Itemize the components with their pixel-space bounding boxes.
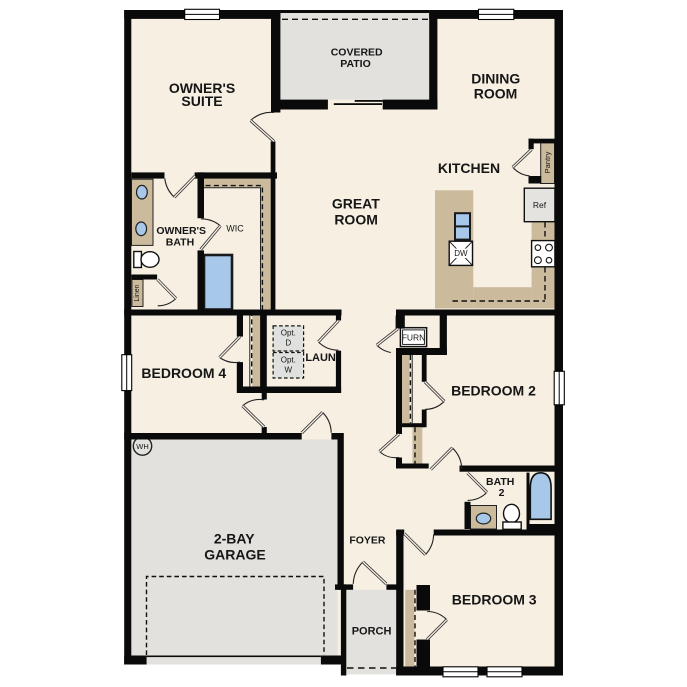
svg-text:GREAT: GREAT <box>332 196 380 212</box>
svg-text:D: D <box>285 339 291 348</box>
svg-text:COVERED: COVERED <box>331 47 383 59</box>
svg-text:ROOM: ROOM <box>474 86 518 102</box>
svg-text:Linen: Linen <box>134 284 141 301</box>
svg-text:OWNER'S: OWNER'S <box>156 225 206 237</box>
svg-text:2: 2 <box>499 487 505 499</box>
svg-text:ROOM: ROOM <box>334 211 378 227</box>
svg-text:W: W <box>285 366 293 375</box>
svg-text:BEDROOM 2: BEDROOM 2 <box>451 382 536 398</box>
svg-text:PORCH: PORCH <box>352 626 392 638</box>
svg-text:Opt.: Opt. <box>281 329 296 338</box>
svg-text:WIC: WIC <box>226 224 244 234</box>
svg-text:FOYER: FOYER <box>349 534 386 546</box>
svg-text:BATH: BATH <box>166 236 194 248</box>
svg-text:2-BAY: 2-BAY <box>214 530 255 546</box>
svg-text:Ref: Ref <box>533 200 547 210</box>
svg-text:BEDROOM 4: BEDROOM 4 <box>141 365 226 381</box>
svg-text:FURN: FURN <box>402 332 426 342</box>
svg-text:Opt.: Opt. <box>281 356 296 365</box>
svg-text:GARAGE: GARAGE <box>204 547 265 563</box>
svg-text:SUITE: SUITE <box>181 93 222 109</box>
svg-text:WH: WH <box>136 442 149 451</box>
svg-text:KITCHEN: KITCHEN <box>438 160 500 176</box>
svg-text:DW: DW <box>454 249 468 258</box>
svg-text:Pantry: Pantry <box>543 151 552 173</box>
svg-text:DINING: DINING <box>471 70 520 86</box>
svg-text:LAUN: LAUN <box>305 352 336 364</box>
svg-text:PATIO: PATIO <box>340 58 371 70</box>
svg-text:BEDROOM 3: BEDROOM 3 <box>452 591 537 607</box>
